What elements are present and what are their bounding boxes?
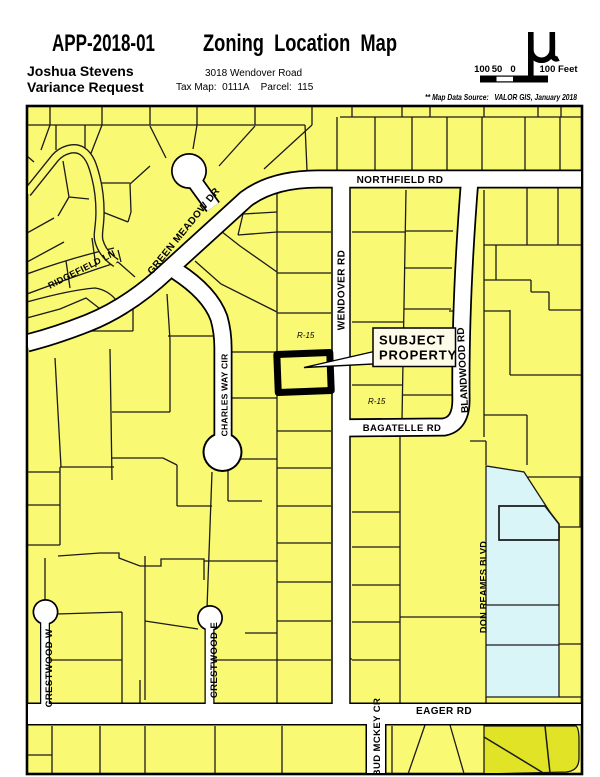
svg-text:100 Feet: 100 Feet: [540, 64, 579, 75]
svg-text:APP-2018-01: APP-2018-01: [52, 30, 155, 57]
svg-text:CRESTWOOD W: CRESTWOOD W: [44, 629, 55, 708]
svg-text:WENDOVER RD: WENDOVER RD: [337, 250, 348, 331]
svg-text:SUBJECT: SUBJECT: [379, 333, 445, 348]
svg-text:Tax Map: 0111A Parcel: 11: Tax Map: 0111A Parcel: 115: [176, 82, 314, 93]
svg-text:R-15: R-15: [297, 331, 315, 340]
svg-text:0: 0: [510, 64, 515, 75]
svg-text:50: 50: [492, 64, 503, 75]
svg-text:R-15: R-15: [368, 397, 386, 406]
svg-text:PROPERTY: PROPERTY: [379, 348, 457, 363]
svg-text:NORTHFIELD RD: NORTHFIELD RD: [357, 175, 444, 186]
svg-text:Variance Request: Variance Request: [27, 79, 144, 95]
svg-text:BAGATELLE RD: BAGATELLE RD: [363, 423, 442, 434]
svg-text:EAGER RD: EAGER RD: [416, 706, 472, 717]
svg-text:** Map Data Source: VALOR GI: ** Map Data Source: VALOR GIS, January 2…: [425, 92, 577, 102]
svg-text:DON REAMES BLVD: DON REAMES BLVD: [479, 541, 489, 633]
svg-text:100: 100: [474, 64, 490, 75]
svg-text:CHARLES WAY CIR: CHARLES WAY CIR: [220, 353, 230, 436]
svg-text:BUD MCKEY CR: BUD MCKEY CR: [372, 698, 383, 777]
svg-text:CRESTWOOD E: CRESTWOOD E: [209, 622, 220, 698]
svg-text:Zoning Location Map: Zoning Location Map: [203, 30, 397, 57]
svg-text:3018 Wendover Road: 3018 Wendover Road: [205, 68, 302, 79]
svg-text:Joshua Stevens: Joshua Stevens: [27, 63, 134, 79]
